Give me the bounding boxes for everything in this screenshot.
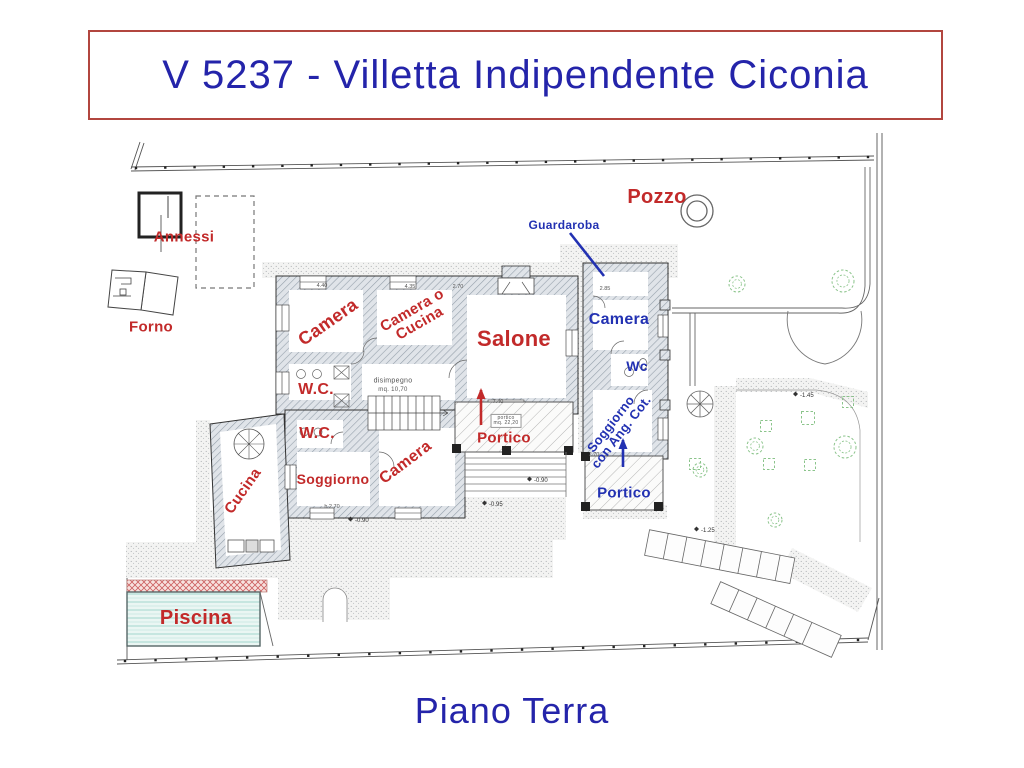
fence-post	[808, 157, 810, 159]
kitchen-tower	[210, 414, 290, 568]
planter-icon	[764, 459, 775, 470]
svg-text:-0.90: -0.90	[534, 478, 548, 484]
fence-post	[521, 648, 523, 650]
pool	[127, 580, 273, 646]
driveway-paths	[672, 167, 870, 542]
east-annex	[583, 263, 670, 459]
fence-post	[277, 655, 279, 657]
fence-post	[135, 167, 137, 169]
planter-icon	[805, 460, 816, 471]
fence-post	[457, 162, 459, 164]
fence-post	[154, 659, 156, 661]
fence-post	[368, 653, 370, 655]
fence-post	[310, 164, 312, 166]
svg-text:-0.90: -0.90	[355, 518, 369, 524]
tree-icon	[729, 276, 745, 292]
fence-post	[603, 160, 605, 162]
dimension-text: 4.35	[405, 284, 416, 290]
planter-icon	[690, 459, 701, 470]
fence-post	[582, 647, 584, 649]
fence-post	[643, 645, 645, 647]
fence-post	[124, 660, 126, 662]
fence-post	[574, 160, 576, 162]
fence-post	[515, 161, 517, 163]
floor-plan-svg: 4.404.352.702.857.402.70h 2.70 -0.90-0.9…	[0, 0, 1024, 768]
dimension-text: 2.85	[600, 286, 611, 292]
fence-post	[185, 658, 187, 660]
floor-caption: Piano Terra	[0, 690, 1024, 732]
dimension-text: 7.40	[493, 399, 504, 405]
fence-post	[281, 165, 283, 167]
pool-edge	[127, 580, 267, 592]
fence-post	[674, 644, 676, 646]
tree-icon	[768, 513, 782, 527]
garden-steps	[645, 530, 842, 658]
fence-post	[399, 652, 401, 654]
fence-post	[215, 657, 217, 659]
fence-post	[164, 166, 166, 168]
pozzo-well	[681, 195, 713, 227]
fence-post	[551, 648, 553, 650]
fence-post	[460, 650, 462, 652]
fence-post	[398, 163, 400, 165]
fence-post	[428, 162, 430, 164]
forno-building	[108, 270, 178, 315]
tree-icon	[832, 270, 854, 292]
dimension-text: h 2.70	[324, 504, 339, 510]
svg-text:-0.95: -0.95	[489, 502, 503, 508]
fence-post	[246, 656, 248, 658]
tree-icon	[834, 436, 856, 458]
tree-icon	[747, 438, 763, 454]
fence-post	[720, 158, 722, 160]
fence-post	[223, 165, 225, 167]
fence-post	[545, 161, 547, 163]
spot-elevation: -1.45	[793, 392, 814, 400]
fence-post	[429, 651, 431, 653]
fence-post	[340, 164, 342, 166]
fence-post	[307, 655, 309, 657]
spot-elevation: -0.90	[527, 477, 548, 485]
fence-post	[857, 639, 859, 641]
portico-south-floor	[452, 402, 573, 455]
fence-post	[662, 159, 664, 161]
fence-post	[486, 162, 488, 164]
fence-post	[369, 163, 371, 165]
fence-post	[691, 158, 693, 160]
fence-post	[612, 646, 614, 648]
fence-post	[633, 159, 635, 161]
fence-post	[193, 166, 195, 168]
pool-water	[127, 592, 260, 646]
fence-post	[735, 642, 737, 644]
dimension-text: 4.40	[317, 283, 328, 289]
svg-text:-1.25: -1.25	[701, 528, 715, 534]
planter-icon	[802, 412, 815, 425]
fence-post	[252, 165, 254, 167]
dimension-text: 2.70	[453, 284, 464, 290]
portico-south-steps	[465, 452, 566, 497]
fence-post	[338, 654, 340, 656]
page: V 5237 - Villetta Indipendente Ciconia	[0, 0, 1024, 768]
interior-stair	[368, 396, 448, 430]
fence-post	[838, 156, 840, 158]
svg-text:-1.45: -1.45	[800, 393, 814, 399]
dimension-text: 2.70	[589, 452, 600, 458]
planter-icon	[761, 421, 772, 432]
spot-elevation: -1.25	[694, 527, 715, 535]
fence-post	[765, 641, 767, 643]
fence-post	[750, 158, 752, 160]
garden-spiral-stair	[687, 391, 713, 417]
fence-post	[704, 643, 706, 645]
fence-post	[867, 156, 869, 158]
fence-post	[779, 157, 781, 159]
fence-post	[490, 649, 492, 651]
